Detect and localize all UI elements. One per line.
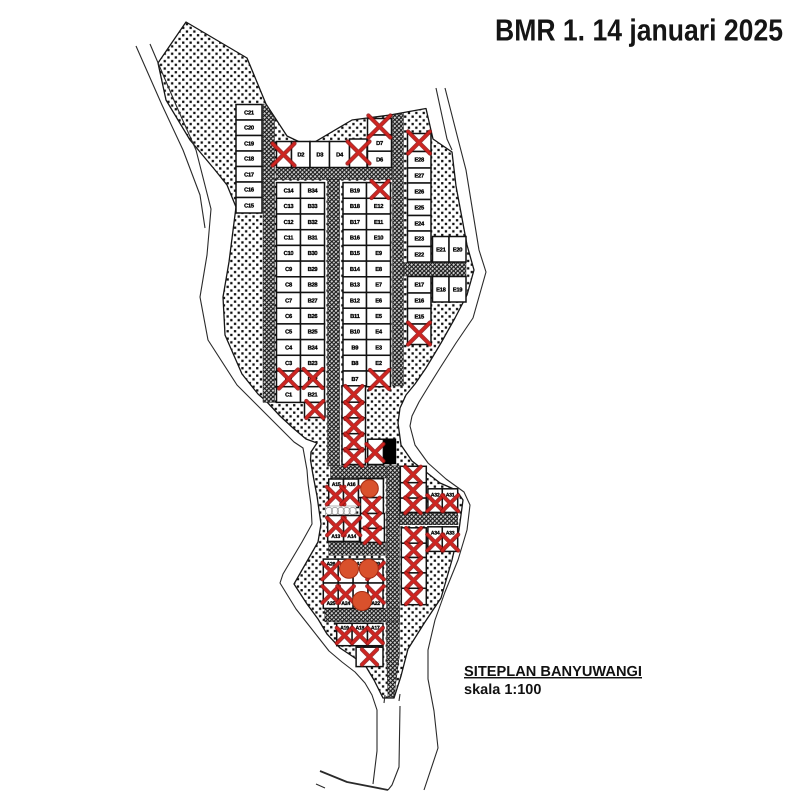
svg-text:C12: C12 xyxy=(284,219,294,226)
svg-text:B34: B34 xyxy=(308,187,319,194)
svg-text:E10: E10 xyxy=(374,235,383,242)
svg-text:B21: B21 xyxy=(308,392,319,399)
svg-text:B17: B17 xyxy=(350,220,360,226)
svg-text:E12: E12 xyxy=(374,203,383,210)
svg-text:D4: D4 xyxy=(336,153,344,159)
svg-text:E9: E9 xyxy=(375,250,383,257)
svg-text:C15: C15 xyxy=(244,202,255,209)
svg-text:B9: B9 xyxy=(351,345,359,352)
svg-text:A16: A16 xyxy=(347,482,356,488)
svg-text:E19: E19 xyxy=(453,286,463,293)
svg-text:E2: E2 xyxy=(375,360,382,367)
svg-text:B11: B11 xyxy=(350,314,360,320)
svg-text:E3: E3 xyxy=(375,345,383,352)
svg-text:C21: C21 xyxy=(244,109,255,116)
svg-text:E17: E17 xyxy=(414,283,423,289)
svg-text:B32: B32 xyxy=(308,219,318,226)
svg-text:C19: C19 xyxy=(244,140,255,147)
svg-text:B26: B26 xyxy=(308,313,319,320)
svg-text:B25: B25 xyxy=(308,329,319,336)
svg-text:B10: B10 xyxy=(350,329,360,336)
svg-text:B19: B19 xyxy=(350,187,361,194)
svg-text:D3: D3 xyxy=(316,152,324,159)
svg-text:BMR 1. 14 januari 2025: BMR 1. 14 januari 2025 xyxy=(495,14,783,48)
svg-text:D6: D6 xyxy=(376,156,384,163)
svg-text:B23: B23 xyxy=(308,360,319,367)
svg-text:SITEPLAN BANYUWANGI: SITEPLAN BANYUWANGI xyxy=(464,664,642,680)
svg-text:B33: B33 xyxy=(308,203,319,210)
svg-text:E15: E15 xyxy=(414,314,424,320)
svg-text:E11: E11 xyxy=(374,220,384,226)
svg-text:C18: C18 xyxy=(244,156,255,163)
svg-text:E22: E22 xyxy=(414,251,423,258)
svg-text:C13: C13 xyxy=(284,203,295,210)
svg-text:A34: A34 xyxy=(431,530,440,536)
svg-text:C7: C7 xyxy=(285,297,292,304)
svg-text:B7: B7 xyxy=(351,377,358,383)
svg-text:B31: B31 xyxy=(308,235,319,242)
svg-text:A13: A13 xyxy=(331,534,340,540)
svg-text:E25: E25 xyxy=(414,205,424,212)
svg-text:E4: E4 xyxy=(375,330,383,336)
svg-text:E28: E28 xyxy=(414,157,424,164)
svg-text:B27: B27 xyxy=(308,297,318,304)
svg-text:E24: E24 xyxy=(414,220,424,227)
svg-text:B14: B14 xyxy=(350,267,361,273)
svg-text:C14: C14 xyxy=(284,187,295,194)
svg-text:D7: D7 xyxy=(376,141,383,147)
svg-text:C8: C8 xyxy=(285,282,293,289)
svg-text:D2: D2 xyxy=(297,152,304,159)
svg-text:E18: E18 xyxy=(436,286,446,293)
svg-text:A14: A14 xyxy=(347,534,356,540)
svg-text:E21: E21 xyxy=(436,246,446,253)
svg-text:B28: B28 xyxy=(308,282,319,289)
svg-text:B30: B30 xyxy=(308,250,318,257)
svg-text:A24: A24 xyxy=(341,601,350,607)
svg-text:E5: E5 xyxy=(375,314,383,320)
svg-text:B18: B18 xyxy=(350,203,361,210)
svg-text:B12: B12 xyxy=(350,297,360,304)
svg-text:B16: B16 xyxy=(350,235,361,242)
svg-text:B13: B13 xyxy=(350,282,361,289)
svg-text:E7: E7 xyxy=(375,283,382,289)
svg-text:E6: E6 xyxy=(375,297,383,304)
svg-text:E8: E8 xyxy=(375,266,383,273)
svg-text:C11: C11 xyxy=(284,235,294,242)
svg-text:A22: A22 xyxy=(371,601,380,607)
svg-text:C16: C16 xyxy=(244,187,255,194)
svg-text:C1: C1 xyxy=(285,392,293,399)
svg-text:B15: B15 xyxy=(350,251,361,257)
svg-text:C10: C10 xyxy=(284,250,294,257)
svg-text:E23: E23 xyxy=(414,236,424,243)
svg-text:E27: E27 xyxy=(414,173,423,180)
svg-text:A25: A25 xyxy=(326,601,335,607)
svg-text:C17: C17 xyxy=(244,171,254,178)
svg-text:E16: E16 xyxy=(414,298,424,305)
svg-text:B29: B29 xyxy=(308,266,319,273)
svg-text:C5: C5 xyxy=(285,329,293,336)
svg-text:C20: C20 xyxy=(244,125,254,132)
svg-text:E20: E20 xyxy=(453,246,462,253)
svg-text:C9: C9 xyxy=(285,266,293,273)
svg-text:skala 1:100: skala 1:100 xyxy=(464,682,541,698)
svg-text:B24: B24 xyxy=(308,345,319,352)
svg-text:C6: C6 xyxy=(285,313,293,320)
svg-text:C3: C3 xyxy=(285,360,293,367)
svg-text:B8: B8 xyxy=(351,360,359,367)
svg-text:E26: E26 xyxy=(414,188,424,195)
svg-text:C4: C4 xyxy=(285,345,293,352)
svg-text:A33: A33 xyxy=(446,530,455,536)
